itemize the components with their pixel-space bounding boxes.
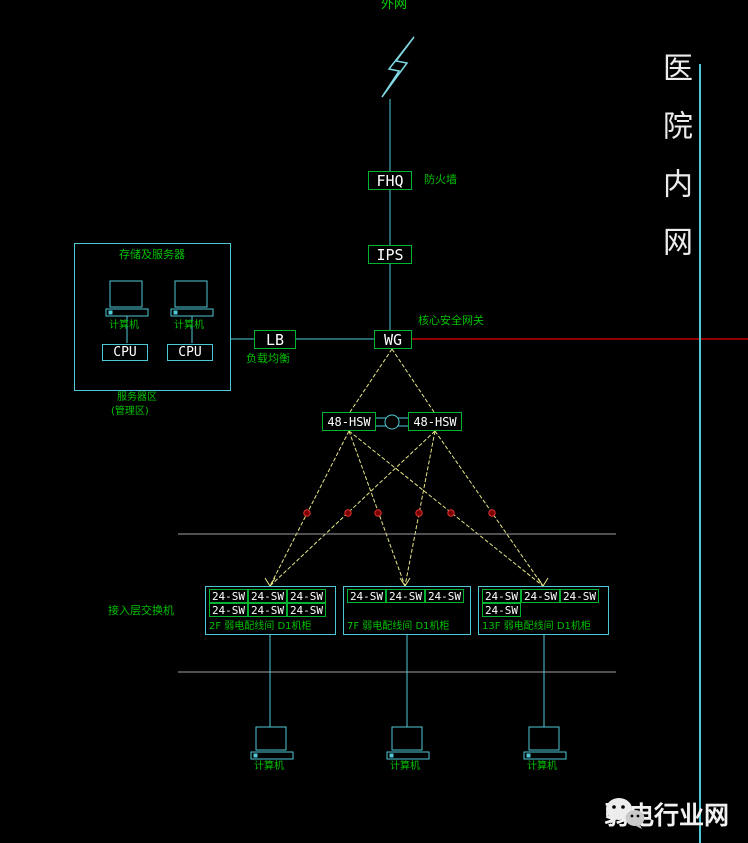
load-balancer-box: LB — [254, 330, 296, 349]
switch-box: 24-SW — [482, 589, 521, 603]
arrowhead — [538, 578, 548, 586]
gateway-annotation: 核心安全网关 — [418, 315, 484, 327]
switch-group-13f: 24-SW 24-SW 24-SW 24-SW 13F 弱电配线间 D1机柜 — [478, 586, 609, 635]
computer-label: 计算机 — [174, 320, 204, 331]
computer-label: 计算机 — [109, 320, 139, 331]
red-dots — [304, 510, 495, 516]
switch-group-caption: 2F 弱电配线间 D1机柜 — [209, 617, 312, 632]
switch-box: 24-SW — [482, 603, 521, 617]
right-banner: 医院内网 — [670, 52, 704, 284]
access-layer-label: 接入层交换机 — [108, 605, 174, 617]
core-switch-right-box: 48-HSW — [408, 412, 462, 431]
watermark: 弱电行业网 — [604, 796, 729, 832]
server-zone-caption1: 服务器区 — [117, 392, 157, 403]
wechat-icon — [604, 796, 646, 830]
server-zone-box: 存储及服务器 计算机 计算机 CPU CPU — [74, 243, 231, 391]
load-balancer-annotation: 负载均衡 — [246, 353, 290, 365]
server-zone-caption2: (管理区) — [111, 406, 149, 417]
terminal-label: 计算机 — [527, 761, 557, 772]
ips-box: IPS — [368, 245, 412, 264]
switch-box: 24-SW — [521, 589, 560, 603]
top-clipped-label: 外网 — [381, 0, 407, 12]
switch-box: 24-SW — [209, 603, 248, 617]
switch-box: 24-SW — [560, 589, 599, 603]
switch-group-2f: 24-SW 24-SW 24-SW 24-SW 24-SW 24-SW 2F 弱… — [205, 586, 336, 635]
arrowhead — [265, 578, 275, 586]
switch-box: 24-SW — [209, 589, 248, 603]
link-gateway-hsw-left — [350, 349, 392, 412]
core-switch-left-box: 48-HSW — [322, 412, 376, 431]
switch-box: 24-SW — [386, 589, 425, 603]
switch-box: 24-SW — [287, 589, 326, 603]
terminal-label: 计算机 — [254, 761, 284, 772]
network-diagram: 外网 FHQ 防火墙 IPS WG 核心安全网关 LB 负载均衡 存储及服务器 … — [0, 0, 748, 843]
switch-group-caption: 13F 弱电配线间 D1机柜 — [482, 617, 591, 632]
computer-icon — [251, 727, 293, 759]
switch-box: 24-SW — [287, 603, 326, 617]
stack-link-circle — [385, 415, 399, 429]
switch-box: 24-SW — [347, 589, 386, 603]
link-gateway-hsw-right — [392, 349, 434, 412]
lightning-icon — [382, 37, 414, 97]
server-zone-title: 存储及服务器 — [119, 249, 185, 261]
gateway-box: WG — [374, 330, 412, 349]
switch-box: 24-SW — [425, 589, 464, 603]
cpu-box: CPU — [102, 344, 148, 361]
computer-icon — [524, 727, 566, 759]
switch-group-caption: 7F 弱电配线间 D1机柜 — [347, 617, 450, 632]
switch-box: 24-SW — [248, 589, 287, 603]
terminal-label: 计算机 — [390, 761, 420, 772]
switch-box: 24-SW — [248, 603, 287, 617]
switch-group-7f: 24-SW 24-SW 24-SW 7F 弱电配线间 D1机柜 — [343, 586, 471, 635]
firewall-annotation: 防火墙 — [424, 174, 457, 186]
computer-icon — [387, 727, 429, 759]
cpu-box: CPU — [167, 344, 213, 361]
firewall-box: FHQ — [368, 171, 412, 190]
